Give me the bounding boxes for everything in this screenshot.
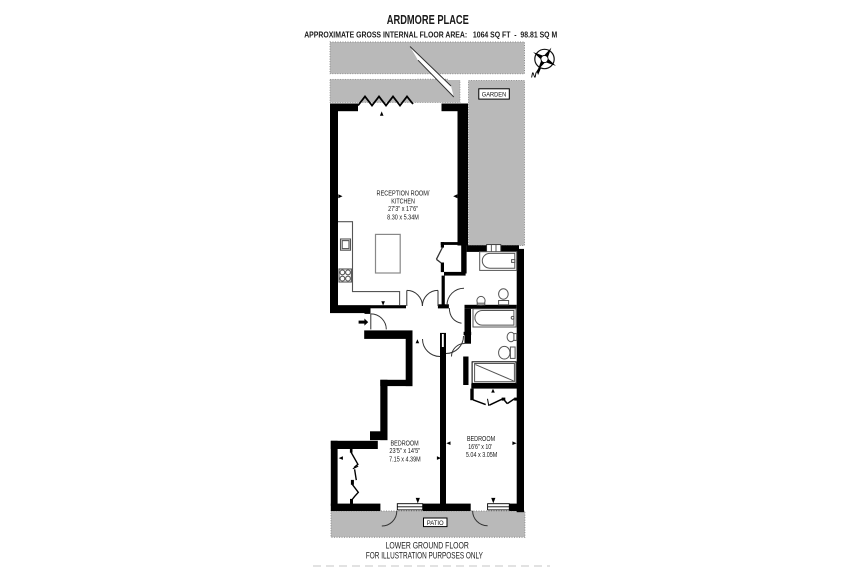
svg-text:8.30 x 5.34M: 8.30 x 5.34M [387, 214, 419, 221]
svg-text:23'5" x 14'5": 23'5" x 14'5" [389, 448, 420, 455]
svg-text:ARDMORE PLACE: ARDMORE PLACE [387, 13, 469, 27]
svg-text:BEDROOM: BEDROOM [391, 441, 419, 448]
svg-text:RECEPTION ROOM/: RECEPTION ROOM/ [377, 191, 430, 198]
svg-text:16'6" x 10': 16'6" x 10' [468, 444, 492, 451]
svg-text:FOR ILLUSTRATION PURPOSES ONLY: FOR ILLUSTRATION PURPOSES ONLY [366, 551, 483, 561]
svg-text:N: N [531, 71, 537, 80]
svg-text:LOWER GROUND FLOOR: LOWER GROUND FLOOR [386, 540, 469, 550]
svg-text:APPROXIMATE GROSS INTERNAL FLO: APPROXIMATE GROSS INTERNAL FLOOR AREA: 1… [304, 30, 557, 40]
svg-text:GARDEN: GARDEN [482, 92, 507, 99]
svg-text:27'3" x 17'6": 27'3" x 17'6" [388, 206, 418, 213]
svg-text:BEDROOM: BEDROOM [467, 436, 496, 443]
svg-text:7.15 x 4.39M: 7.15 x 4.39M [389, 457, 421, 464]
svg-text:5.04 x 3.05M: 5.04 x 3.05M [466, 452, 498, 459]
svg-text:PATIO: PATIO [427, 520, 444, 527]
svg-text:KITCHEN: KITCHEN [391, 198, 415, 205]
